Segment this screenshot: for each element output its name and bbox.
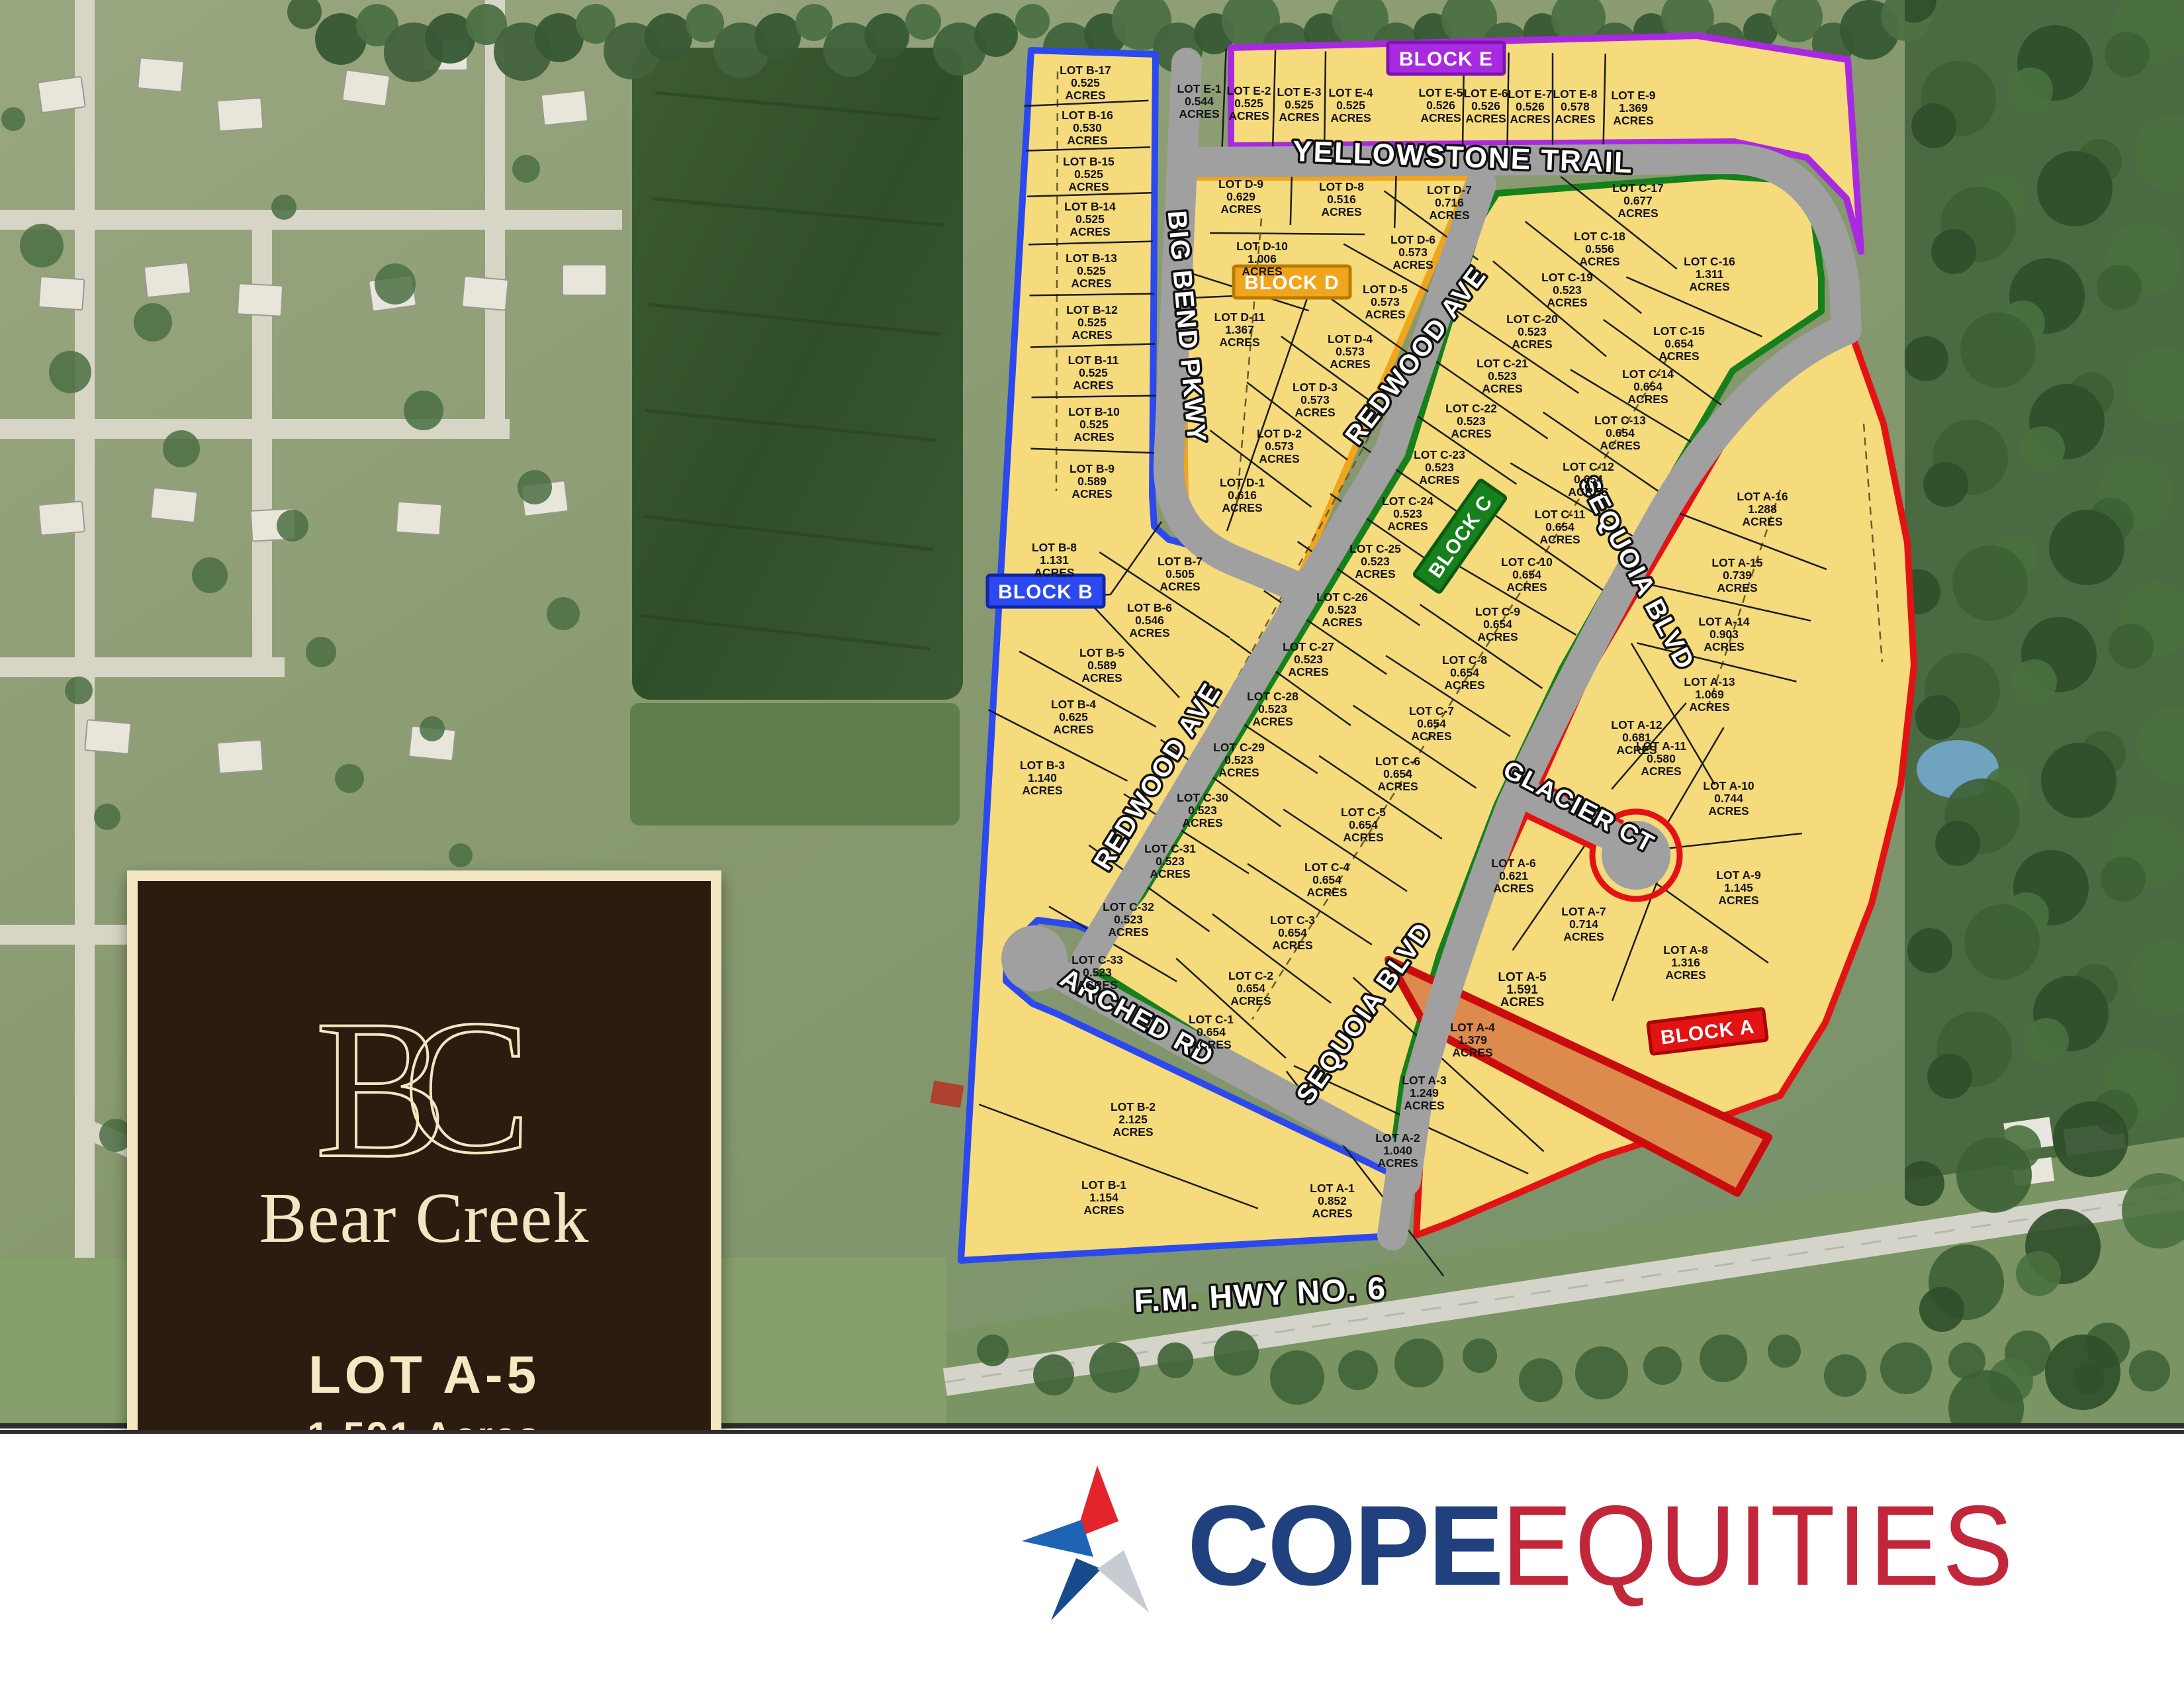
featured-lot: LOT A-5 [138,1344,711,1405]
arched-rd-culdesac[interactable] [1001,925,1068,992]
plat-marketing-image: YELLOWSTONE TRAILBIG BEND PKWYREDWOOD AV… [0,0,2184,1688]
block-tab-block-e[interactable]: BLOCK E [1388,42,1504,74]
monogram-c: C [403,980,531,1193]
block-tab-block-b[interactable]: BLOCK B [987,575,1104,607]
brand-cope: COPE [1187,1489,1502,1603]
brand-equities: EQUITIES [1502,1489,2015,1603]
cope-equities-logo[interactable]: COPEEQUITIES [1019,1453,2054,1638]
bear-creek-monogram-icon: B C [282,980,567,1199]
cope-star-icon [1019,1463,1178,1628]
community-name: Bear Creek [138,1178,711,1260]
svg-text:BLOCK E: BLOCK E [1399,48,1493,70]
svg-text:BLOCK B: BLOCK B [998,581,1093,603]
